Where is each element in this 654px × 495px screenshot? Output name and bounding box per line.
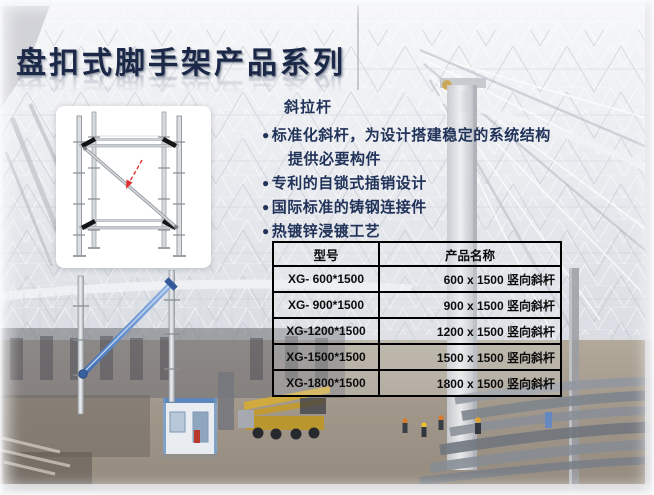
table-row: XG-1200*1500 1200 x 1500 竖向斜杆	[273, 318, 561, 344]
column-header-model: 型号	[273, 242, 379, 266]
table-row: XG-1800*1500 1800 x 1500 竖向斜杆	[273, 370, 561, 396]
feature-text-continued: 提供必要构件	[262, 150, 610, 169]
table-row: XG- 600*1500 600 x 1500 竖向斜杆	[273, 266, 561, 292]
bullet-icon: ●	[262, 222, 270, 241]
slide-title-block: 盘扣式脚手架产品系列 盘扣式脚手架产品系列	[16, 38, 436, 105]
brace-render-image	[72, 270, 184, 416]
column-header-product-name: 产品名称	[379, 242, 561, 266]
model-cell: XG-1800*1500	[273, 370, 379, 396]
scaffold-drawing	[56, 106, 211, 268]
product-name-cell: 1500 x 1500 竖向斜杆	[379, 344, 561, 370]
model-cell: XG-1500*1500	[273, 344, 379, 370]
product-name-cell: 1800 x 1500 竖向斜杆	[379, 370, 561, 396]
feature-item: ● 热镀锌浸镀工艺	[262, 222, 610, 241]
table-header-row: 型号 产品名称	[273, 242, 561, 266]
bullet-icon: ●	[262, 174, 270, 193]
product-name-cell: 600 x 1500 竖向斜杆	[379, 266, 561, 292]
red-arrow-icon	[126, 160, 142, 189]
model-cell: XG- 600*1500	[273, 266, 379, 292]
table-row: XG-1500*1500 1500 x 1500 竖向斜杆	[273, 344, 561, 370]
feature-item: ● 国际标准的铸钢连接件	[262, 198, 610, 217]
product-name-cell: 900 x 1500 竖向斜杆	[379, 292, 561, 318]
table-row: XG- 900*1500 900 x 1500 竖向斜杆	[273, 292, 561, 318]
slide: 盘扣式脚手架产品系列 盘扣式脚手架产品系列	[0, 0, 654, 495]
brace-render	[72, 270, 184, 416]
feature-item: ● 标准化斜杆，为设计搭建稳定的系统结构	[262, 126, 610, 145]
feature-text: 标准化斜杆，为设计搭建稳定的系统结构	[272, 126, 551, 145]
feature-text: 专利的自锁式插销设计	[272, 174, 427, 193]
bullet-icon: ●	[262, 126, 270, 145]
feature-text: 热镀锌浸镀工艺	[272, 222, 381, 241]
model-cell: XG- 900*1500	[273, 292, 379, 318]
section-label: 斜拉杆	[262, 96, 610, 117]
feature-item: ● 专利的自锁式插销设计	[262, 174, 610, 193]
feature-text: 国际标准的铸钢连接件	[272, 198, 427, 217]
bullet-icon: ●	[262, 198, 270, 217]
product-name-cell: 1200 x 1500 竖向斜杆	[379, 318, 561, 344]
model-cell: XG-1200*1500	[273, 318, 379, 344]
content-block: 斜拉杆 ● 标准化斜杆，为设计搭建稳定的系统结构 提供必要构件 ● 专利的自锁式…	[262, 96, 610, 246]
scaffold-diagram-image	[56, 106, 211, 268]
product-table: 型号 产品名称 XG- 600*1500 600 x 1500 竖向斜杆 XG-…	[272, 241, 562, 397]
